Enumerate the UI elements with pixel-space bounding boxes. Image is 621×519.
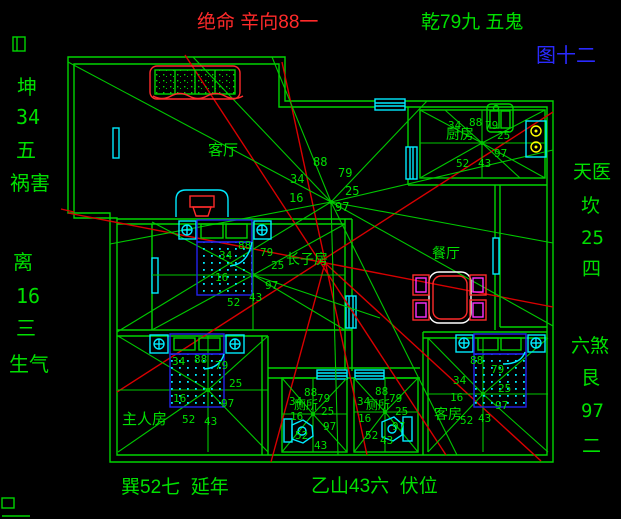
fsnum: 52 [295, 430, 308, 441]
dining-table-inner [433, 276, 467, 319]
fsnum: 79 [491, 364, 504, 375]
room-dining: 餐厅 [432, 246, 460, 260]
figure-number: 图十二 [536, 46, 596, 66]
tv-cabinet [176, 190, 228, 217]
room-master: 主人房 [122, 412, 167, 427]
fsnum: 16 [215, 272, 228, 283]
fsnum: 25 [271, 260, 284, 271]
fsnum: 97 [335, 201, 349, 213]
fsnum: 97 [323, 421, 336, 432]
window [346, 296, 356, 328]
annot-left-san: 三 [16, 319, 36, 339]
fsnum: 43 [314, 440, 327, 451]
fsnum: 52 [227, 297, 240, 308]
fsnum: 97 [494, 148, 507, 159]
annot-left-li-16: 16 [16, 286, 40, 306]
annot-right-liusha: 六煞 [571, 337, 609, 356]
fsnum: 97 [265, 280, 278, 291]
annot-left-kun: 坤 [17, 78, 37, 98]
annot-right-kan-25: 25 [581, 229, 604, 248]
fsnum: 88 [313, 156, 327, 168]
fsnum: 88 [470, 355, 483, 366]
pillow [478, 338, 498, 350]
window [375, 99, 405, 110]
fsnum: 79 [260, 247, 273, 258]
fsnum: 25 [497, 130, 510, 141]
window [493, 238, 499, 274]
tv-screen [190, 196, 214, 207]
annot-left-shengqi: 生气 [9, 355, 49, 375]
annot-right-kan: 坎 [581, 197, 600, 216]
star-house-center [329, 200, 333, 204]
star-kitchen-ray [420, 143, 482, 178]
fsnum: 25 [229, 378, 242, 389]
bed-headboard [474, 334, 526, 354]
annot-left-huohai: 祸害 [10, 174, 50, 194]
window [355, 370, 384, 379]
fsnum: 16 [290, 411, 303, 422]
fsnum: 52 [460, 415, 473, 426]
fsnum: 34 [289, 396, 302, 407]
star-toilet-left-center [311, 412, 315, 416]
annot-bottom-yishan: 乙山43六 伏位 [311, 477, 438, 496]
fsnum: 43 [204, 416, 217, 427]
stove-burner-dot [535, 146, 538, 149]
fsnum: 43 [380, 435, 393, 446]
sink-basin [501, 111, 510, 128]
bed-headboard [170, 334, 224, 354]
star-house-ray [331, 202, 553, 326]
fsnum: 16 [289, 192, 303, 204]
annot-right-gen-97: 97 [581, 402, 604, 421]
fsnum: 97 [392, 421, 405, 432]
window [113, 128, 119, 158]
fsnum: 16 [358, 413, 371, 424]
fsnum: 34 [453, 375, 466, 386]
fsnum: 43 [249, 292, 262, 303]
fsnum: 52 [365, 430, 378, 441]
room-eldest-son: 长子房 [286, 252, 328, 266]
fsnum: 88 [194, 354, 207, 365]
fsnum: 52 [456, 158, 469, 169]
annot-left-li: 离 [13, 253, 33, 273]
fsnum: 97 [495, 400, 508, 411]
annot-top-juemin: 绝命 辛向88一 [197, 13, 318, 32]
stove-burner-dot [535, 130, 538, 133]
star-house-ray [331, 202, 553, 243]
window [317, 370, 347, 379]
pillow [226, 224, 247, 238]
annot-right-er: 二 [582, 437, 601, 456]
fsnum: 34 [219, 250, 232, 261]
pillow [199, 338, 220, 350]
fsnum: 34 [357, 396, 370, 407]
fsnum: 25 [498, 383, 511, 394]
fsnum: 25 [395, 406, 408, 417]
fsnum: 43 [478, 413, 491, 424]
annot-top-qian: 乾79九 五鬼 [421, 13, 523, 32]
fsnum: 79 [338, 167, 352, 179]
fsnum: 34 [448, 120, 461, 131]
room-guest: 客房 [434, 407, 462, 421]
fsnum: 25 [345, 185, 359, 197]
window [406, 147, 417, 179]
fsnum: 79 [389, 393, 402, 404]
annot-left-wu: 五 [16, 141, 36, 161]
fsnum: 34 [290, 173, 304, 185]
fsnum: 34 [172, 356, 185, 367]
fsnum: 88 [375, 386, 388, 397]
fsnum: 16 [450, 392, 463, 403]
annot-left-kun-34: 34 [16, 107, 40, 127]
chair-inner [473, 303, 483, 317]
chair-inner [473, 278, 483, 292]
annot-right-tianyi: 天医 [573, 163, 611, 182]
pillow [501, 338, 521, 350]
fsnum: 16 [173, 393, 186, 404]
star-house-ray [331, 150, 553, 202]
star-kitchen-center [480, 141, 484, 145]
annot-right-gen: 艮 [581, 369, 600, 388]
fsnum: 97 [221, 398, 234, 409]
fsnum: 52 [182, 414, 195, 425]
fsnum: 88 [238, 240, 251, 251]
annot-right-si: 四 [582, 260, 601, 279]
fsnum: 88 [469, 117, 482, 128]
tv-base [193, 207, 211, 216]
dining-table [429, 272, 471, 323]
room-living: 客厅 [208, 143, 238, 158]
fsnum: 43 [478, 158, 491, 169]
fsnum: 79 [317, 393, 330, 404]
cad-artifact [13, 37, 25, 51]
fsnum: 79 [215, 360, 228, 371]
chair-inner [416, 303, 426, 317]
fsnum: 88 [304, 387, 317, 398]
fsnum: 25 [321, 406, 334, 417]
cad-floorplan-canvas[interactable]: 绝命 辛向88一乾79九 五鬼图十二坤34五祸害离16三生气天医坎25四六煞艮9… [0, 0, 621, 519]
cad-artifact [2, 498, 14, 508]
annot-bottom-xun: 巽52七 延年 [121, 478, 229, 497]
